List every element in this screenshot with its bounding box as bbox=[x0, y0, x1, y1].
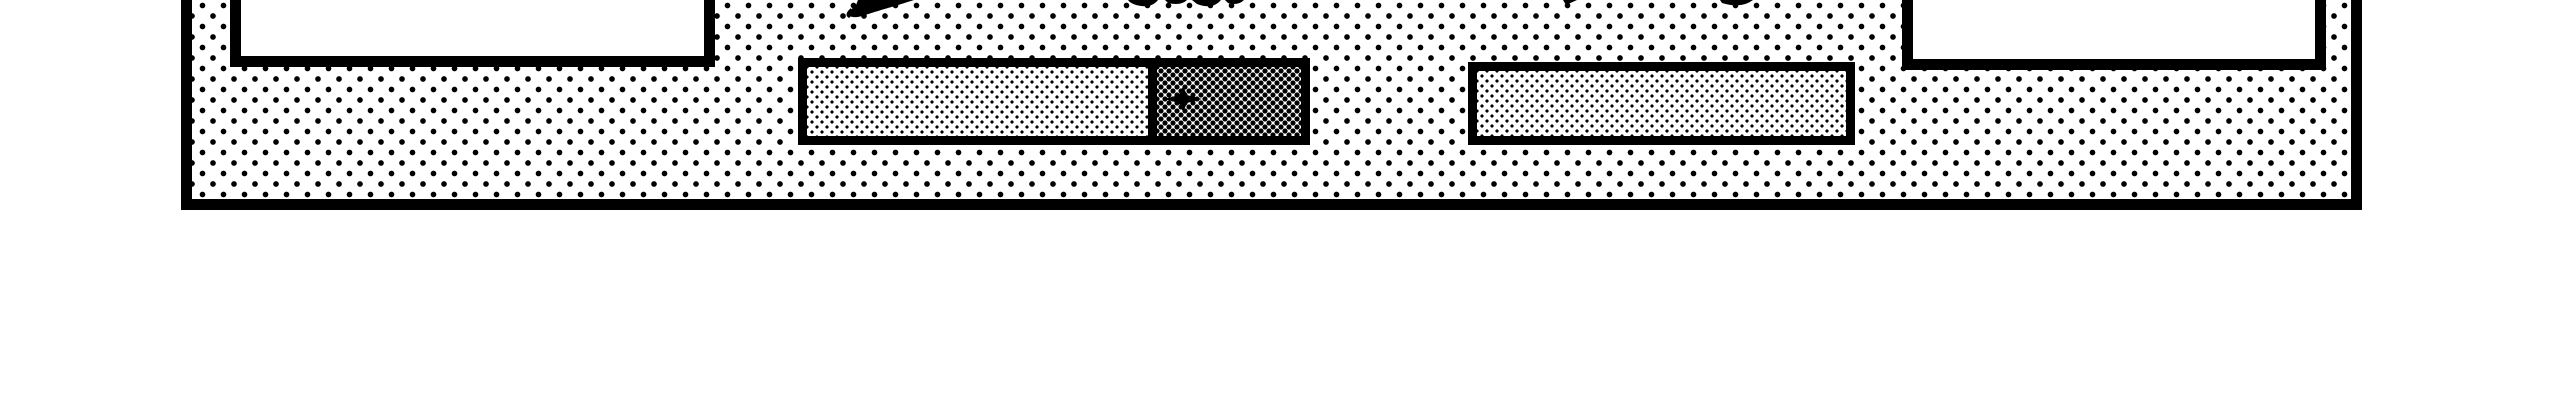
crosshair-cursor-icon bbox=[1163, 85, 1203, 113]
left-button-label bbox=[241, 0, 704, 56]
progress-bar[interactable] bbox=[798, 58, 1310, 145]
right-button-label bbox=[1913, 0, 2315, 59]
screenshot-canvas bbox=[0, 0, 2560, 400]
right-button[interactable] bbox=[1902, 0, 2326, 70]
progress-bar-filled-segment bbox=[807, 67, 1148, 136]
progress-bar-remaining-segment bbox=[1157, 67, 1301, 136]
dialog-panel bbox=[181, 0, 2362, 210]
left-button[interactable] bbox=[230, 0, 715, 67]
cutoff-artwork-fragments bbox=[830, 0, 1760, 22]
secondary-bar-fill bbox=[1477, 71, 1846, 136]
progress-bar-divider bbox=[1148, 67, 1157, 136]
secondary-bar[interactable] bbox=[1468, 62, 1855, 145]
